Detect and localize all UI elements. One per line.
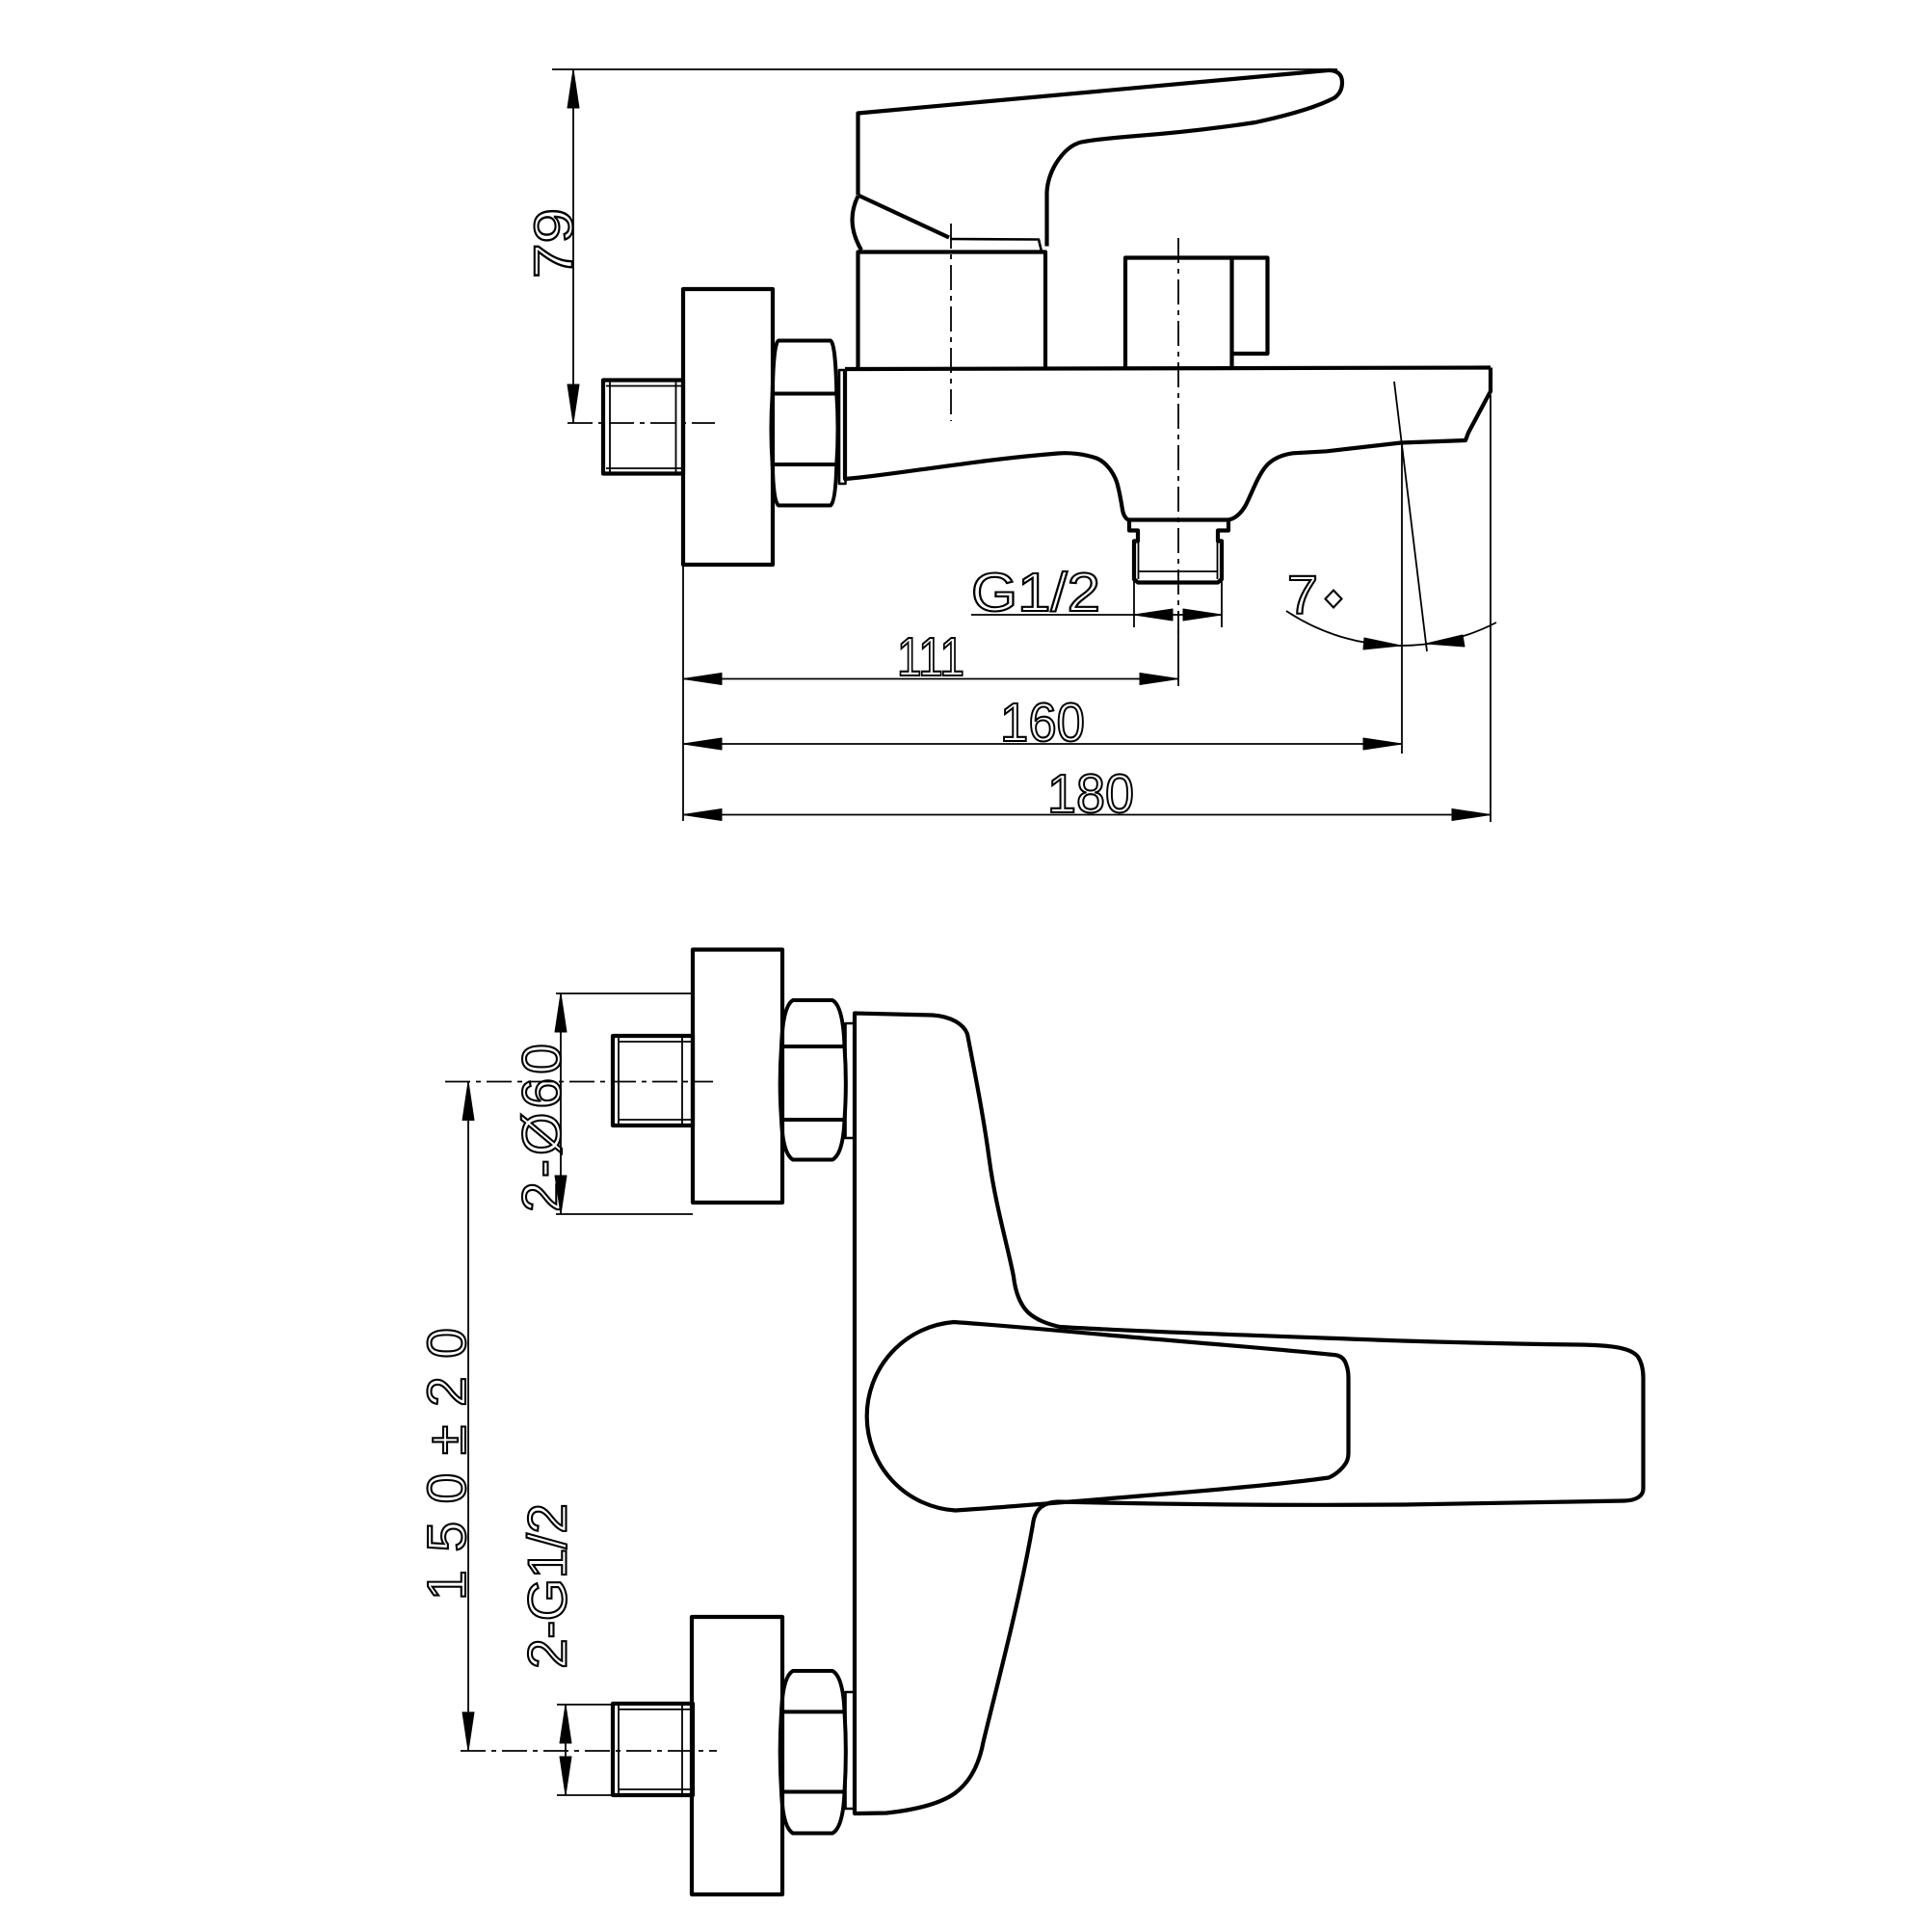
svg-text:2-G1/2: 2-G1/2 — [517, 1503, 579, 1669]
svg-text:111: 111 — [897, 626, 964, 688]
svg-text:G1/2: G1/2 — [971, 562, 1100, 623]
svg-text:2-Ø60: 2-Ø60 — [512, 1044, 573, 1212]
svg-text:180: 180 — [1047, 763, 1134, 825]
svg-text:7: 7 — [1287, 565, 1318, 626]
svg-text:160: 160 — [1000, 692, 1085, 754]
svg-text:79: 79 — [523, 208, 585, 278]
